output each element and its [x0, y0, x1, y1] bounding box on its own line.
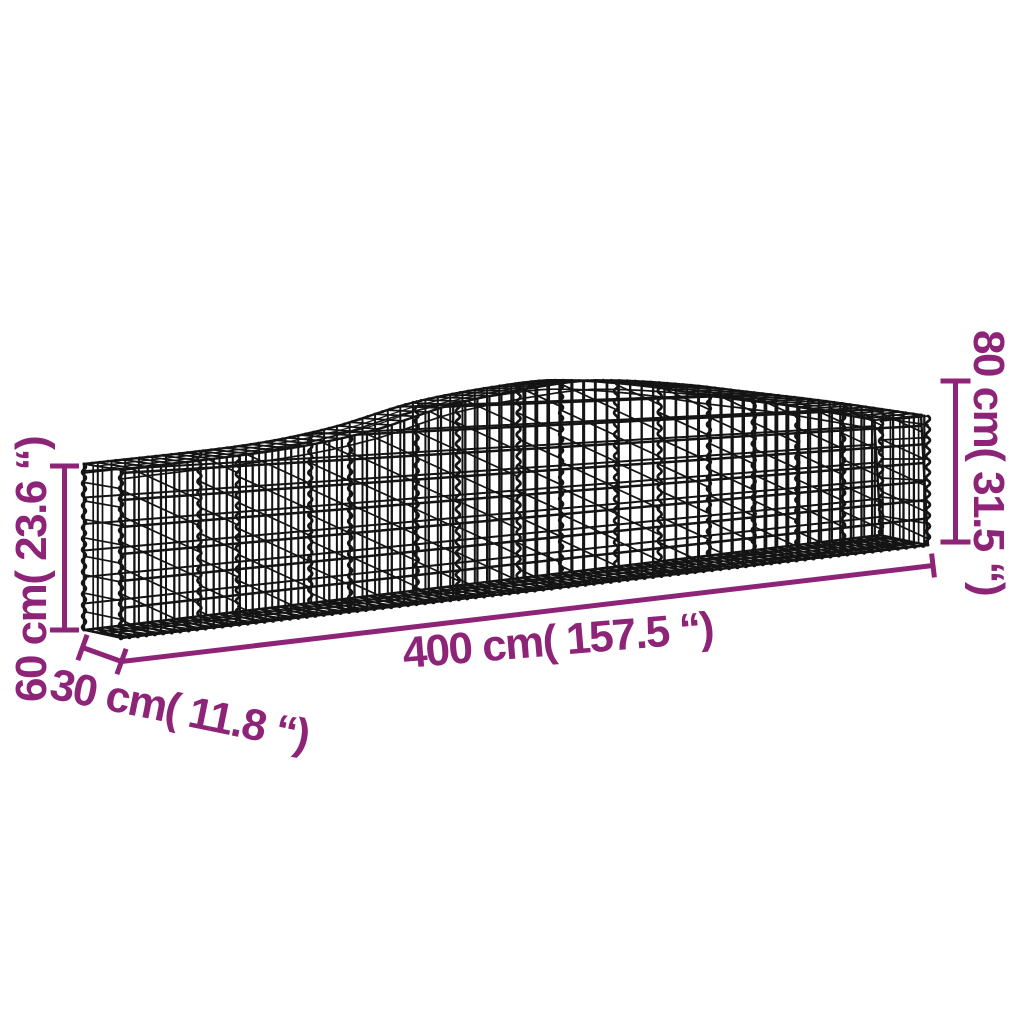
- svg-text:80 cm( 31.5 “): 80 cm( 31.5 “): [964, 330, 1013, 595]
- svg-text:60 cm( 23.6 “): 60 cm( 23.6 “): [7, 437, 56, 702]
